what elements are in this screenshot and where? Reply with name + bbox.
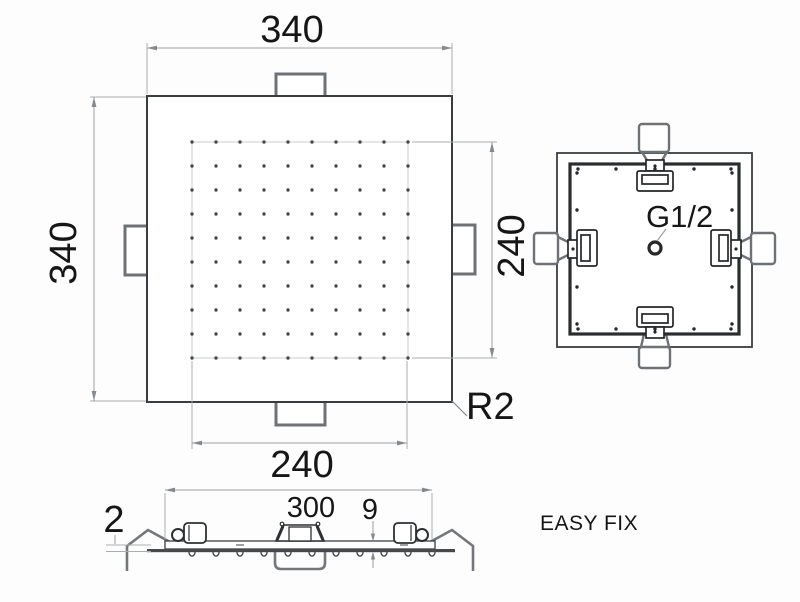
nozzle-dot — [286, 164, 289, 167]
nozzle-dot — [286, 260, 289, 263]
nozzle-dot — [310, 236, 313, 239]
spray-plate — [147, 549, 455, 552]
nozzle-dot — [334, 140, 337, 143]
nozzle-dot — [310, 332, 313, 335]
nozzle-dot — [214, 188, 217, 191]
nozzle-hooks — [189, 552, 435, 556]
nozzle-hook — [405, 552, 411, 556]
nozzle-dot — [190, 212, 193, 215]
nozzle-dot — [382, 284, 385, 287]
front-tab-top — [276, 74, 325, 98]
nozzle-dot — [214, 260, 217, 263]
nozzle-dot — [382, 140, 385, 143]
technical-drawing-page: 340 340 240 240 R2 — [0, 0, 800, 602]
nozzle-dot — [262, 140, 265, 143]
nozzle-dot — [262, 284, 265, 287]
nozzle-dot — [334, 212, 337, 215]
nozzle-dot — [382, 236, 385, 239]
dim-label-spray-height: 240 — [491, 214, 533, 277]
screw-dot — [692, 327, 695, 330]
nozzle-dot — [310, 164, 313, 167]
back-view: G1/2 — [534, 124, 775, 368]
nozzle-dot — [214, 284, 217, 287]
nozzle-dot — [382, 164, 385, 167]
nozzle-dot — [406, 212, 409, 215]
nozzle-hook — [213, 552, 219, 556]
nozzle-dot — [334, 164, 337, 167]
screw-dot — [653, 327, 656, 330]
back-tab-top — [639, 124, 669, 152]
nozzle-dot — [190, 308, 193, 311]
brand-label: EASY FIX — [540, 512, 638, 535]
dim-body-thickness: 9 — [362, 494, 378, 568]
nozzle-dot — [382, 212, 385, 215]
nozzle-dot — [286, 284, 289, 287]
nozzle-dot — [190, 236, 193, 239]
screw-dot — [730, 285, 733, 288]
nozzle-dot — [406, 236, 409, 239]
nozzle-dot — [238, 140, 241, 143]
nozzle-dot — [286, 308, 289, 311]
nozzle-hook — [237, 552, 243, 556]
front-tab-left — [125, 226, 149, 275]
nozzle-dot — [190, 164, 193, 167]
nozzle-dot — [262, 188, 265, 191]
nozzle-dot — [406, 188, 409, 191]
nozzle-dot — [310, 212, 313, 215]
nozzle-dot — [214, 164, 217, 167]
nozzle-dot — [406, 356, 409, 359]
nozzle-dot — [286, 212, 289, 215]
nozzle-hook — [189, 552, 195, 556]
nozzle-dot — [238, 164, 241, 167]
screw-dot — [575, 285, 578, 288]
back-tab-left — [534, 233, 558, 264]
nozzle-dot — [238, 332, 241, 335]
nozzle-dot — [334, 356, 337, 359]
nozzle-dot — [334, 260, 337, 263]
nozzle-hook — [285, 552, 291, 556]
nozzle-dot — [358, 236, 361, 239]
nozzle-dot — [262, 356, 265, 359]
nozzle-dot — [406, 332, 409, 335]
nozzle-dot — [214, 212, 217, 215]
screw-dot — [614, 327, 617, 330]
nozzle-dot — [238, 284, 241, 287]
dim-plate-thickness: 2 — [103, 499, 151, 552]
nozzle-dot — [262, 212, 265, 215]
nozzle-dot — [358, 284, 361, 287]
nozzle-dot — [334, 332, 337, 335]
nozzle-dot — [190, 284, 193, 287]
nozzle-dot — [406, 164, 409, 167]
nozzle-dot — [310, 140, 313, 143]
nozzle-hook — [381, 552, 387, 556]
center-mount — [276, 522, 324, 541]
nozzle-dot — [382, 356, 385, 359]
nozzle-dot — [262, 308, 265, 311]
nozzle-dot — [382, 188, 385, 191]
dim-label-plate-thickness: 2 — [103, 499, 124, 541]
nozzle-dot — [406, 284, 409, 287]
front-tab-bottom — [276, 400, 325, 425]
shower-head-technical-drawing: 340 340 240 240 R2 — [0, 0, 800, 602]
nozzle-dot — [310, 260, 313, 263]
nozzle-dot — [190, 356, 193, 359]
nozzle-dot — [238, 212, 241, 215]
nozzle-dot — [310, 356, 313, 359]
nozzle-hook — [429, 552, 435, 556]
screw-dot — [575, 208, 578, 211]
nozzle-dot — [190, 188, 193, 191]
nozzle-dot — [334, 284, 337, 287]
screw-dot — [576, 167, 579, 170]
nozzle-dot — [262, 164, 265, 167]
thread-label: G1/2 — [646, 199, 713, 234]
nozzle-dot — [190, 332, 193, 335]
nozzle-dot — [334, 188, 337, 191]
nozzle-dot — [262, 236, 265, 239]
thread-inlet-circle — [649, 242, 661, 254]
nozzle-dot — [406, 140, 409, 143]
nozzle-dot — [262, 332, 265, 335]
nozzle-dot — [262, 260, 265, 263]
side-view: 300 9 2 — [103, 488, 473, 571]
screw-dot — [729, 327, 732, 330]
inlet-housing — [275, 551, 325, 569]
nozzle-dot — [286, 140, 289, 143]
dim-label-body-thickness: 9 — [362, 494, 378, 526]
nozzle-hook — [357, 552, 363, 556]
radius-label: R2 — [466, 386, 515, 428]
dim-label-overall-height: 340 — [43, 221, 85, 284]
screw-dot — [730, 208, 733, 211]
nozzle-dot — [214, 332, 217, 335]
screw-dot — [576, 327, 579, 330]
screw-dot — [730, 322, 733, 325]
nozzle-dot — [214, 356, 217, 359]
nozzle-dot — [358, 332, 361, 335]
nozzle-dot — [286, 332, 289, 335]
front-view — [125, 74, 475, 425]
screw-dot — [653, 167, 656, 170]
nozzle-dot — [358, 164, 361, 167]
nozzle-dot — [238, 260, 241, 263]
screw-dot — [575, 171, 578, 174]
back-tab-right — [751, 233, 775, 264]
nozzle-dot — [238, 356, 241, 359]
nozzle-hook — [261, 552, 267, 556]
dim-label-spray-width: 240 — [270, 444, 333, 486]
nozzle-dot — [358, 260, 361, 263]
nozzle-dot — [238, 188, 241, 191]
nozzle-hook — [333, 552, 339, 556]
nozzle-dot — [310, 188, 313, 191]
nozzle-dot — [286, 236, 289, 239]
front-tab-right — [451, 225, 475, 274]
nozzle-hook — [309, 552, 315, 556]
dim-label-overall-width: 340 — [260, 9, 323, 51]
nozzle-dot — [358, 308, 361, 311]
screw-dot — [729, 167, 732, 170]
nozzle-dot — [238, 308, 241, 311]
nozzle-dot — [406, 308, 409, 311]
nozzle-dot — [406, 260, 409, 263]
screw-dot — [692, 167, 695, 170]
nozzle-dot — [382, 260, 385, 263]
nozzle-dot — [214, 236, 217, 239]
nozzle-dot — [310, 284, 313, 287]
radius-callout: R2 — [452, 386, 515, 428]
nozzle-dot — [190, 140, 193, 143]
nozzle-dot — [286, 356, 289, 359]
screw-dot — [730, 171, 733, 174]
nozzle-dot — [214, 308, 217, 311]
nozzle-dot — [334, 236, 337, 239]
back-tab-bottom — [639, 347, 670, 368]
nozzle-dot — [358, 140, 361, 143]
nozzle-dot — [190, 260, 193, 263]
nozzle-dot — [358, 188, 361, 191]
screw-dot — [614, 167, 617, 170]
dim-label-body-width: 300 — [287, 492, 335, 524]
screw-dot — [575, 322, 578, 325]
nozzle-dot — [334, 308, 337, 311]
nozzle-dot — [382, 332, 385, 335]
nozzle-dot — [286, 188, 289, 191]
nozzle-dot — [238, 236, 241, 239]
nozzle-dot — [358, 356, 361, 359]
nozzle-dot — [358, 212, 361, 215]
nozzle-dot — [382, 308, 385, 311]
nozzle-dot — [214, 140, 217, 143]
nozzle-dot — [310, 308, 313, 311]
